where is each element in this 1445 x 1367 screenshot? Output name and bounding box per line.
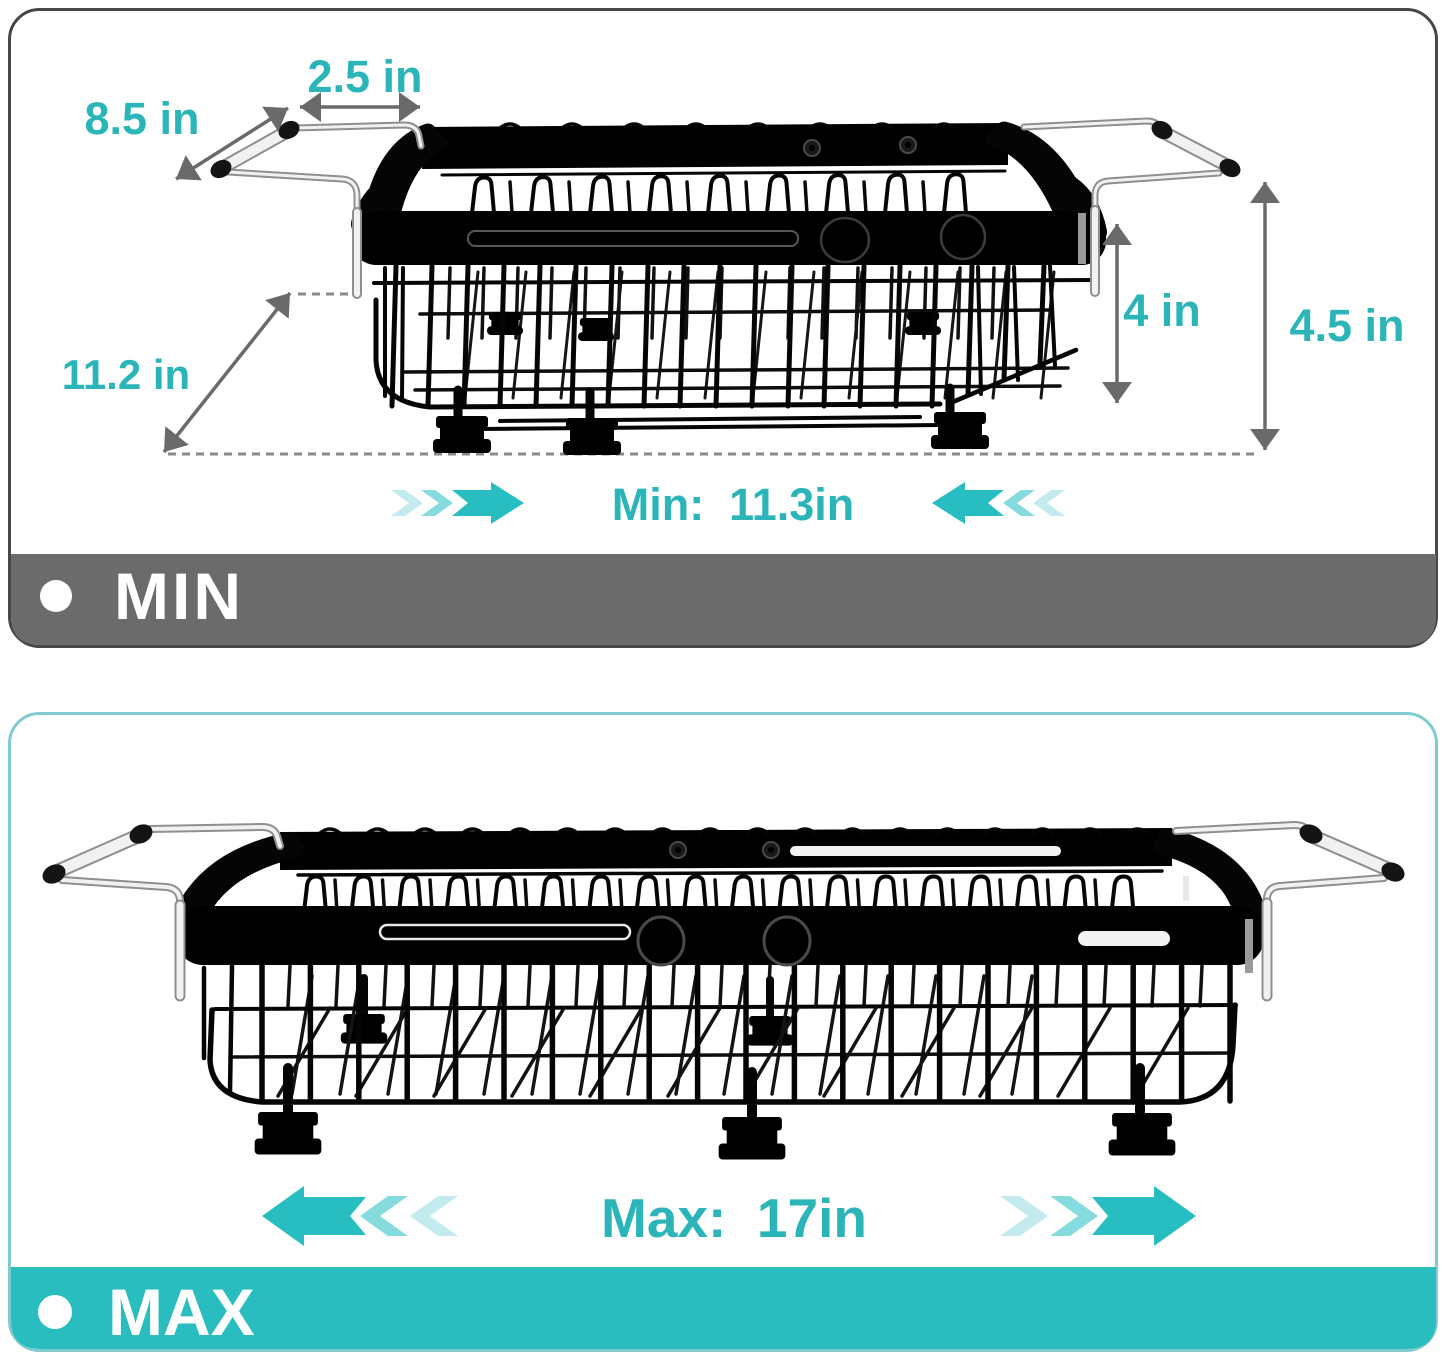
svg-text:4 in: 4 in: [1123, 285, 1201, 336]
svg-text:2.5 in: 2.5 in: [307, 51, 422, 102]
svg-text:8.5 in: 8.5 in: [84, 93, 199, 144]
svg-text:MAX: MAX: [108, 1275, 255, 1349]
svg-text:4.5 in: 4.5 in: [1289, 300, 1404, 351]
svg-text:11.2 in: 11.2 in: [62, 351, 190, 398]
svg-text:Max: 17in: Max: 17in: [601, 1187, 867, 1249]
svg-text:Min: 11.3in: Min: 11.3in: [612, 479, 855, 530]
svg-text:MIN: MIN: [114, 559, 244, 633]
